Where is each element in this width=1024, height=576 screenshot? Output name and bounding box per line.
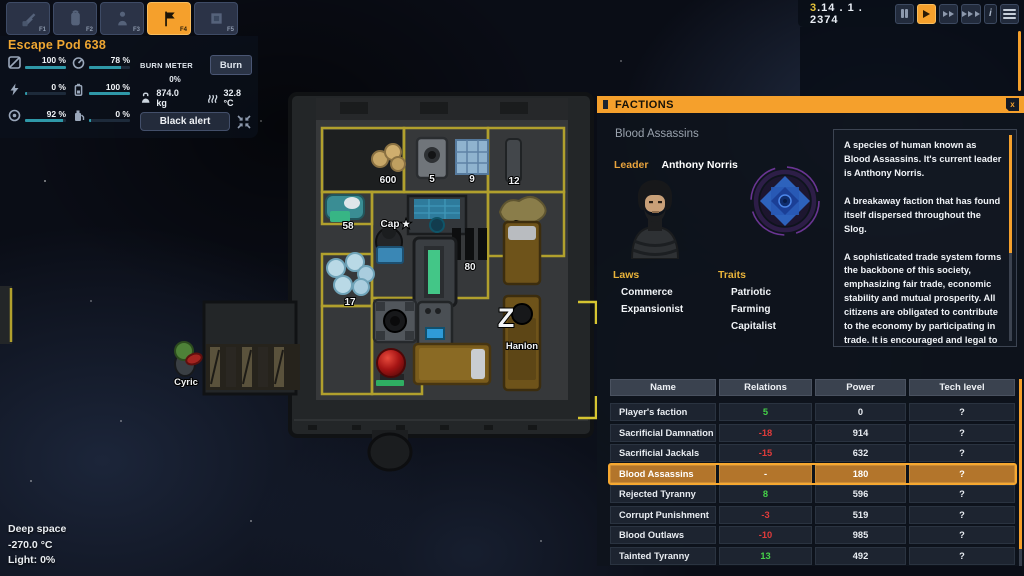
factions-window: FACTIONS x Blood Assassins Leader Anthon… [597,96,1024,566]
faction-cell-power[interactable]: 632 [815,444,906,462]
oxygen-icon [8,109,21,122]
environment-info: Deep space -270.0 °C Light: 0% [8,522,66,568]
bag-icon [66,9,85,28]
shovel-icon [19,9,38,28]
faction-name: Blood Assassins [615,128,699,140]
faction-cell-relations[interactable]: - [719,465,812,483]
faction-cell-power[interactable]: 492 [815,547,906,565]
faction-row-selected[interactable]: Blood Assassins - 180 ? [610,465,1015,483]
character-cyric[interactable]: Cyric [174,342,203,388]
log-scrollbar[interactable] [1018,31,1021,91]
faction-cell-relations[interactable]: 5 [719,403,812,421]
red-orb[interactable] [376,349,405,386]
weight-icon [140,92,151,104]
fkey-label: F1 [39,27,46,33]
description-scrollbar-thumb[interactable] [1009,135,1012,253]
collapse-panel-button[interactable] [236,114,252,130]
escape-pod-panel: Escape Pod 638 100 % 78 % 0 % 100 % [0,36,258,138]
factions-header[interactable]: FACTIONS x [597,96,1024,113]
laws-title: Laws [613,269,639,281]
leader-label: Leader [614,159,648,171]
sleep-indicator: Z [498,303,515,333]
collapse-icon [236,114,252,130]
trait-item: Patriotic [731,287,771,298]
fkey-label: F5 [227,27,234,33]
faction-row[interactable]: Tainted Tyranny 13 492 ? [610,547,1015,565]
faction-cell-relations[interactable]: -10 [719,526,812,544]
fkey-label: F2 [86,27,93,33]
power-stat: 0 % [8,82,66,97]
outside-temperature: -270.0 °C [8,538,66,553]
stack-count: 600 [380,175,397,186]
faction-emblem [747,163,823,239]
faction-cell-tech[interactable]: ? [909,485,1015,503]
column-header-power[interactable]: Power [815,379,906,396]
leader-name: Anthony Norris [661,159,737,171]
burn-meter-value: 0% [140,75,210,84]
stat-bar [89,92,130,95]
stack-count: 58 [342,221,354,232]
burn-button[interactable]: Burn [210,55,252,75]
play-button[interactable] [917,4,936,24]
stack-count: 9 [469,174,475,185]
game-viewport: 600 5 9 12 58 [0,0,1024,576]
black-alert-button[interactable]: Black alert [140,112,230,131]
temperature-value: 32.8 °C [223,88,252,108]
game-date: 3.14 . 1 . 2374 [810,2,883,26]
stat-value: 100 % [25,56,66,65]
flag-icon [160,9,179,28]
crate-icon [207,9,226,28]
escape-thruster [369,434,411,470]
stat-bar [25,119,66,122]
faction-cell-name[interactable]: Blood Assassins [610,465,716,483]
close-button[interactable]: x [1006,98,1019,111]
info-button[interactable]: i [984,4,997,24]
faction-cell-tech[interactable]: ? [909,506,1015,524]
heat-icon [207,92,218,104]
faction-cell-name[interactable]: Sacrificial Jackals [610,444,716,462]
header-marker [603,100,608,109]
factions-table: Name Relations Power Tech level Player's… [610,379,1015,566]
battery-stat: 100 % [72,82,130,97]
gauge-icon [72,56,85,69]
table-scrollbar-thumb[interactable] [1019,379,1022,549]
bed-bottom[interactable] [414,344,490,384]
conveyor-walkway [206,344,300,390]
stat-bar [89,66,130,69]
faction-description-box: A species of human known as Blood Assass… [833,129,1017,347]
bed-upper-right[interactable] [504,222,540,284]
tab-inventory[interactable]: F2 [53,2,97,35]
faction-cell-power[interactable]: 985 [815,526,906,544]
law-item: Expansionist [621,304,683,315]
character-label: Cap [381,219,400,230]
stack-count: 5 [429,174,435,185]
edge-structure [0,286,12,344]
stat-value: 78 % [89,56,130,65]
fkey-label: F4 [180,27,187,33]
faction-cell-tech[interactable]: ? [909,526,1015,544]
date-rest: .14 . 1 . 2374 [810,2,863,26]
speed-stat: 78 % [72,55,130,70]
hull-stat: 100 % [8,55,66,70]
tab-tools[interactable]: F1 [6,2,50,35]
message-log-panel [800,27,1024,96]
mass-value: 874.0 kg [156,88,190,108]
trait-item: Capitalist [731,321,776,332]
traits-title: Traits [718,269,746,281]
pod-stats: 100 % 78 % 0 % 100 % 92 % [8,55,130,131]
engine-core[interactable] [414,238,456,306]
stat-bar [25,92,66,95]
faction-cell-tech[interactable]: ? [909,547,1015,565]
faction-row[interactable]: Rejected Tyranny 8 596 ? [610,485,1015,503]
crusher-machine[interactable] [374,300,416,342]
faction-cell-name[interactable]: Player's faction [610,403,716,421]
faction-row[interactable]: Corrupt Punishment -3 519 ? [610,506,1015,524]
faction-row[interactable]: Blood Outlaws -10 985 ? [610,526,1015,544]
hull-icon [8,56,21,69]
clock-bar: 3.14 . 1 . 2374 i [798,0,1024,27]
person-icon [113,9,132,28]
tab-crew[interactable]: F3 [100,2,144,35]
speed-3x-button[interactable] [961,4,981,24]
trait-item: Farming [731,304,770,315]
faction-cell-name[interactable]: Sacrificial Damnation [610,424,716,442]
stack-count: 12 [508,176,520,187]
column-header-relations[interactable]: Relations [719,379,812,396]
faction-cell-power[interactable]: 0 [815,403,906,421]
escape-pod-title: Escape Pod 638 [8,38,252,52]
character-label: Hanlon [506,341,538,352]
washer-machine[interactable] [418,302,452,348]
faction-description: A species of human known as Blood Assass… [844,139,1002,347]
faction-row[interactable]: Player's faction 5 0 ? [610,403,1015,421]
character-label: Cyric [174,377,198,388]
law-item: Commerce [621,287,673,298]
light-level: Light: 0% [8,553,66,568]
fuel-stat: 0 % [72,108,130,123]
stat-value: 100 % [89,83,130,92]
battery-icon [72,83,85,96]
faction-cell-tech[interactable]: ? [909,403,1015,421]
stack-count: 17 [344,297,356,308]
menu-button[interactable] [1000,4,1019,24]
stat-value: 0 % [25,83,66,92]
fkey-label: F3 [133,27,140,33]
faction-cell-name[interactable]: Corrupt Punishment [610,506,716,524]
faction-cell-relations[interactable]: 8 [719,485,812,503]
tab-factions[interactable]: F4 [147,2,191,35]
faction-cell-tech[interactable]: ? [909,465,1015,483]
faction-cell-relations[interactable]: -18 [719,424,812,442]
stack-count: 80 [464,262,476,273]
faction-row[interactable]: Sacrificial Jackals -15 632 ? [610,444,1015,462]
faction-cell-relations[interactable]: -15 [719,444,812,462]
stat-bar [89,119,130,122]
leader-portrait [624,175,686,259]
faction-cell-power[interactable]: 596 [815,485,906,503]
burn-meter-label: BURN METER [140,61,193,70]
faction-cell-power[interactable]: 180 [815,465,906,483]
favorite-star-icon: ★ [402,219,411,229]
fuel-icon [72,109,85,122]
faction-cell-relations[interactable]: 13 [719,547,812,565]
toolbar-tabs: F1 F2 F3 F4 F5 [6,2,238,35]
speed-2x-button[interactable] [939,4,958,24]
faction-cell-power[interactable]: 914 [815,424,906,442]
faction-cell-power[interactable]: 519 [815,506,906,524]
stat-value: 92 % [25,110,66,119]
location-label: Deep space [8,522,66,537]
faction-cell-relations[interactable]: -3 [719,506,812,524]
faction-row[interactable]: Sacrificial Damnation -18 914 ? [610,424,1015,442]
stat-bar [25,66,66,69]
stat-value: 0 % [89,110,130,119]
fabricator-machine[interactable]: 5 [417,138,447,185]
oxygen-stat: 92 % [8,108,66,123]
faction-cell-name[interactable]: Blood Outlaws [610,526,716,544]
tab-storage[interactable]: F5 [194,2,238,35]
faction-cell-name[interactable]: Rejected Tyranny [610,485,716,503]
column-header-tech[interactable]: Tech level [909,379,1015,396]
factions-title: FACTIONS [615,99,674,111]
faction-cell-tech[interactable]: ? [909,444,1015,462]
top-wall-vents [316,98,568,120]
menu-icon [1003,9,1016,19]
bolt-icon [8,83,21,96]
column-header-name[interactable]: Name [610,379,716,396]
locker[interactable]: 12 [506,139,521,187]
faction-cell-name[interactable]: Tainted Tyranny [610,547,716,565]
character-hanlon[interactable]: Z Hanlon [498,296,540,390]
table-header: Name Relations Power Tech level [610,379,1015,396]
faction-cell-tech[interactable]: ? [909,424,1015,442]
pause-button[interactable] [895,4,914,24]
